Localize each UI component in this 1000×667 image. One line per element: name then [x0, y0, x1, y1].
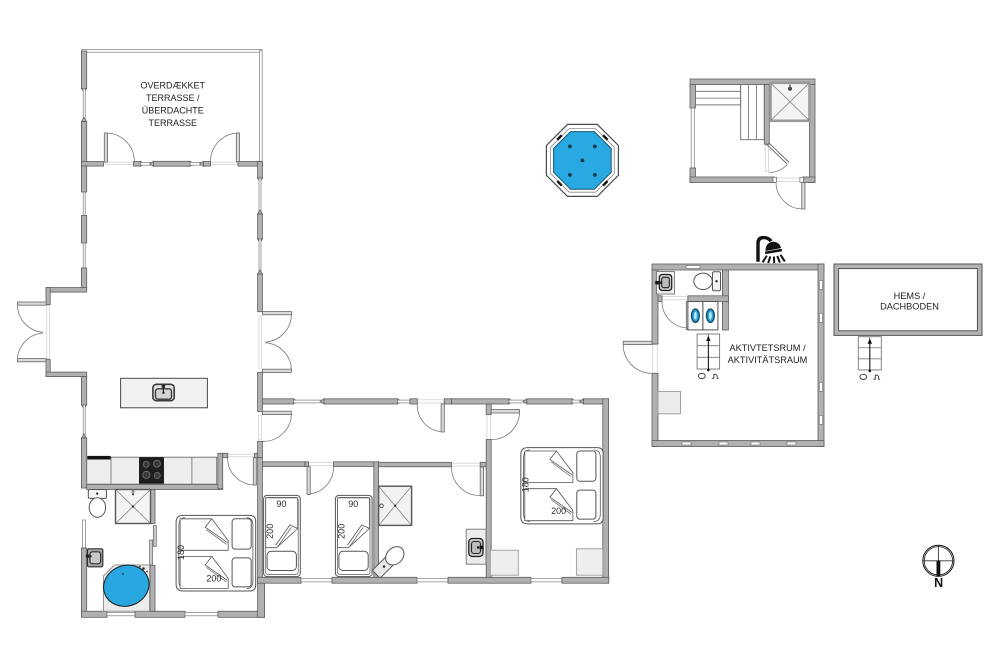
svg-text:90: 90 — [348, 499, 358, 509]
svg-text:200: 200 — [265, 524, 275, 539]
svg-text:180: 180 — [521, 477, 531, 492]
svg-text:HEMS /: HEMS / — [894, 291, 926, 301]
svg-text:200: 200 — [337, 524, 347, 539]
svg-text:180: 180 — [176, 545, 186, 560]
svg-text:90: 90 — [276, 499, 286, 509]
svg-text:AKTIVTETSRUM /: AKTIVTETSRUM / — [729, 343, 806, 353]
svg-text:TERRASSE: TERRASSE — [149, 118, 198, 128]
svg-text:200: 200 — [206, 574, 221, 584]
svg-text:TERRASSE /: TERRASSE / — [146, 93, 200, 103]
svg-text:200: 200 — [551, 506, 566, 516]
svg-text:N: N — [934, 576, 943, 590]
svg-text:DACHBODEN: DACHBODEN — [880, 301, 939, 311]
svg-text:OVERDÆKKET: OVERDÆKKET — [141, 81, 206, 91]
svg-text:ÜBERDACHTE: ÜBERDACHTE — [142, 106, 204, 116]
svg-text:AKTIVITÄTSRAUM: AKTIVITÄTSRAUM — [728, 355, 808, 365]
